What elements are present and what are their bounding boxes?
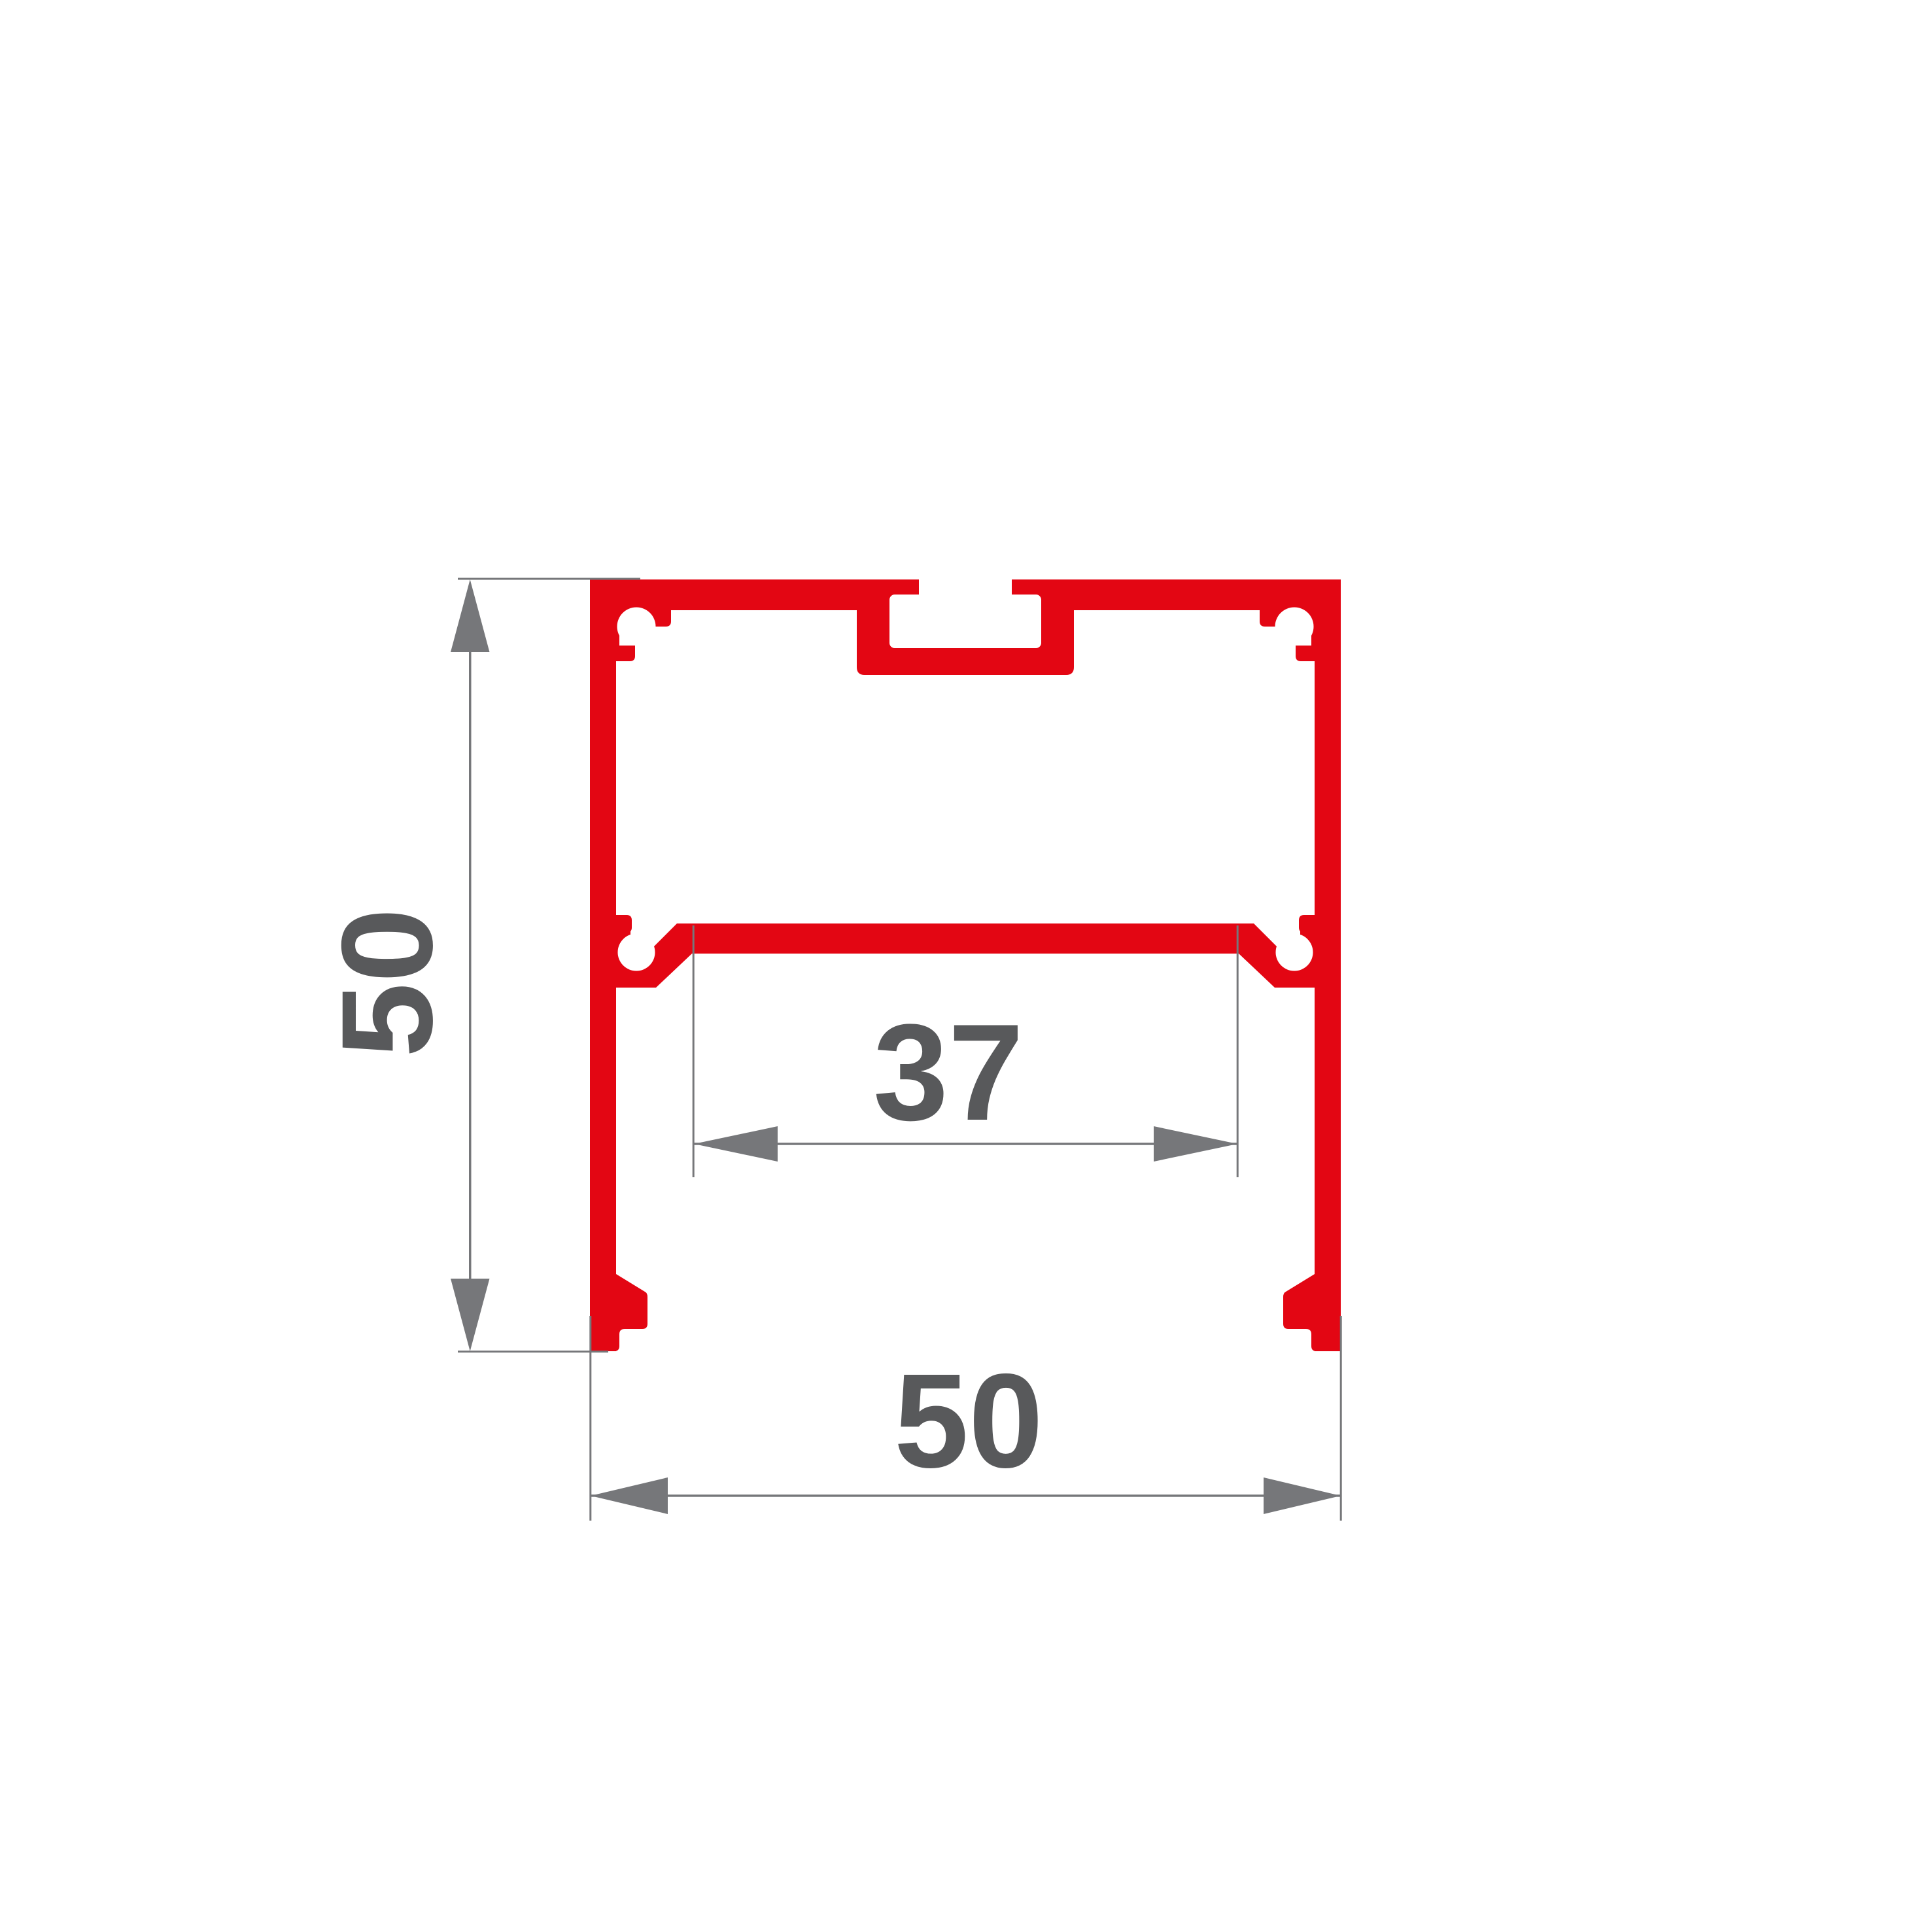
svg-text:50: 50 [315,908,459,1058]
svg-text:37: 37 [873,995,1024,1149]
svg-text:50: 50 [894,1346,1043,1496]
